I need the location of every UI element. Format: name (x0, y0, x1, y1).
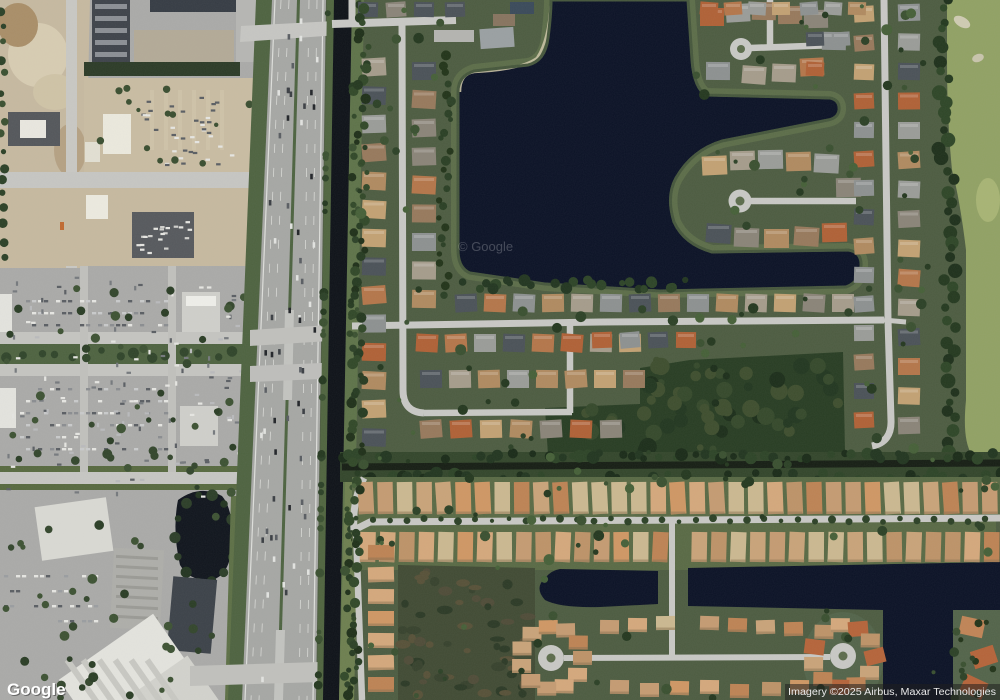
svg-text:Imagery ©2025 Airbus, Maxar Te: Imagery ©2025 Airbus, Maxar Technologies (788, 687, 996, 698)
svg-text:© Google: © Google (458, 239, 513, 254)
svg-text:Google: Google (7, 680, 66, 699)
